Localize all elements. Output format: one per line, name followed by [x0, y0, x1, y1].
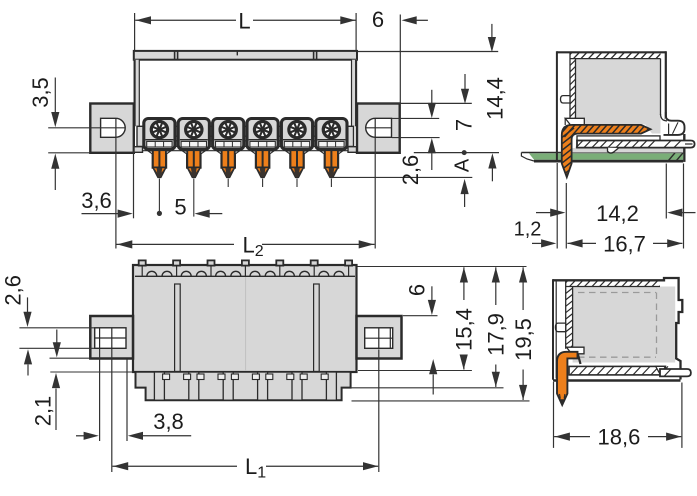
- svg-text:5: 5: [174, 195, 186, 220]
- svg-text:19,5: 19,5: [511, 318, 536, 361]
- svg-text:14,4: 14,4: [482, 77, 507, 120]
- svg-text:6: 6: [372, 7, 384, 32]
- svg-text:6: 6: [405, 284, 430, 296]
- svg-text:17,9: 17,9: [484, 313, 509, 356]
- svg-text:14,2: 14,2: [596, 201, 639, 226]
- svg-text:3,8: 3,8: [153, 409, 184, 434]
- svg-text:7: 7: [451, 119, 476, 131]
- svg-text:3,6: 3,6: [81, 188, 112, 213]
- svg-text:2,1: 2,1: [31, 396, 56, 427]
- svg-text:3,5: 3,5: [28, 77, 53, 108]
- svg-text:1,2: 1,2: [514, 219, 542, 241]
- svg-text:L: L: [238, 8, 250, 33]
- svg-text:16,7: 16,7: [603, 232, 646, 257]
- svg-text:2,6: 2,6: [398, 155, 423, 186]
- svg-text:15,4: 15,4: [452, 308, 477, 351]
- svg-text:2,6: 2,6: [0, 275, 25, 306]
- svg-text:18,6: 18,6: [597, 425, 640, 450]
- svg-text:A: A: [452, 158, 474, 172]
